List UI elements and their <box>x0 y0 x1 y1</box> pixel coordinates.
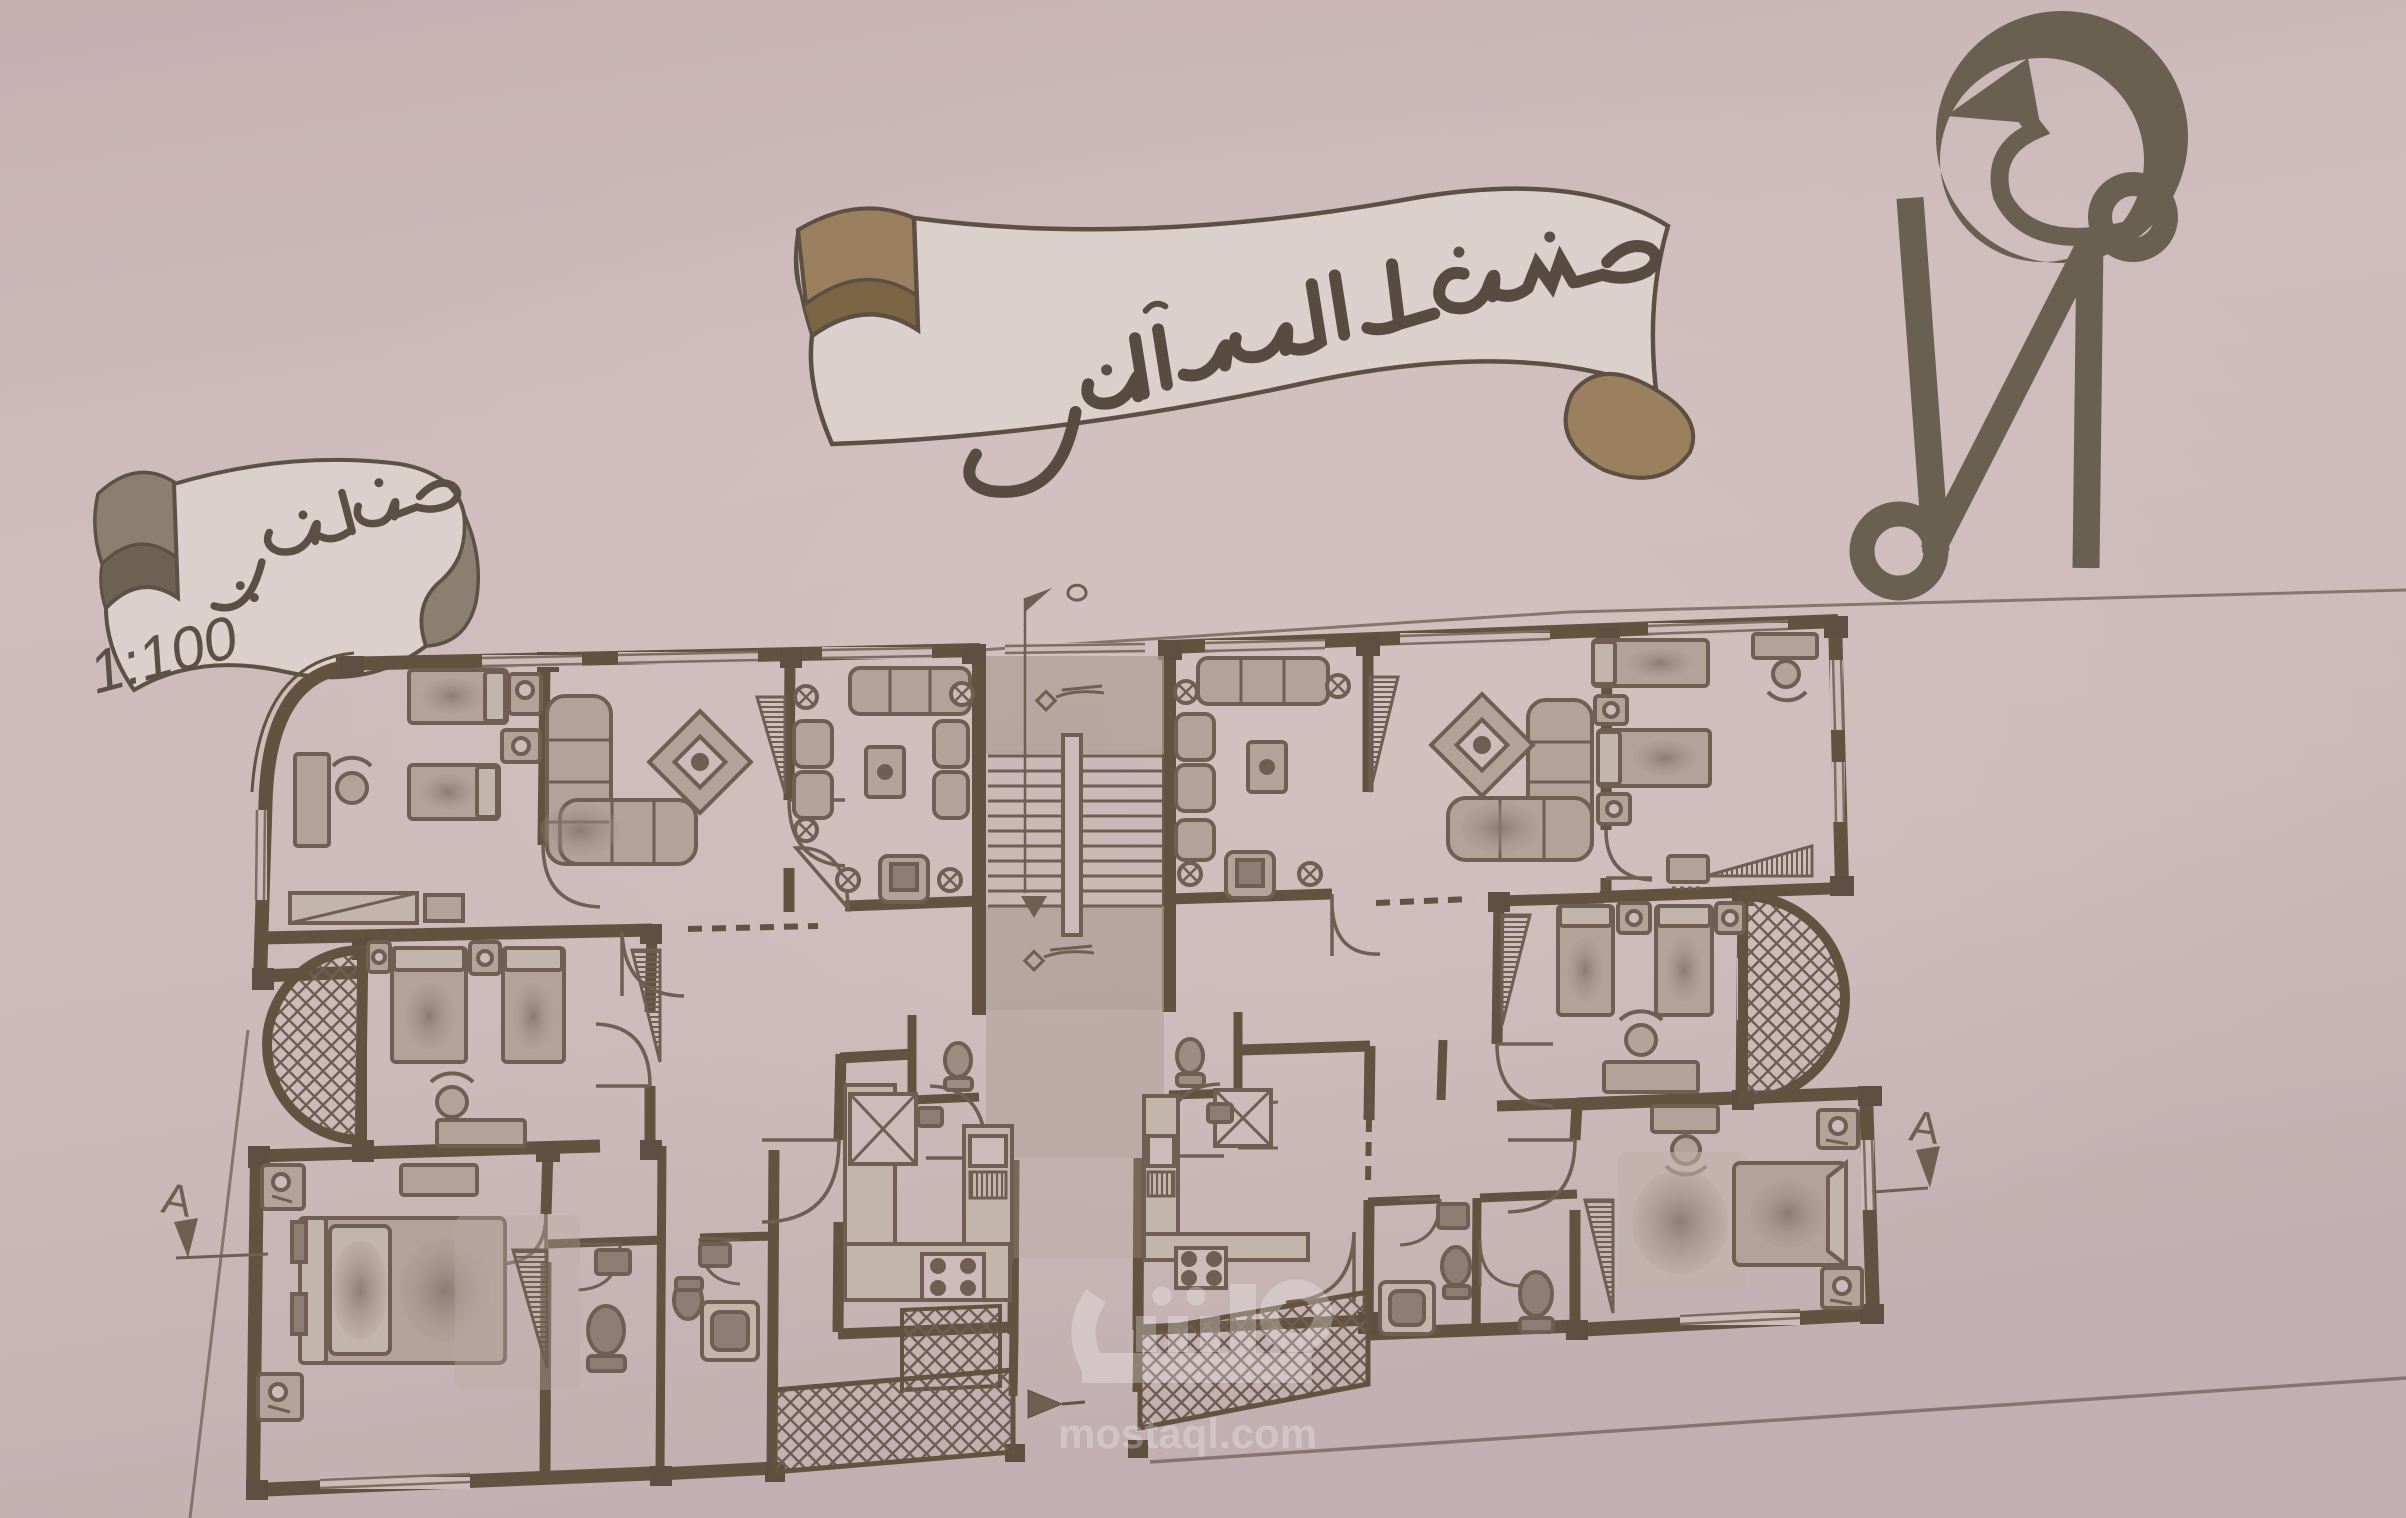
svg-text:mostaql.com: mostaql.com <box>1058 1410 1317 1457</box>
